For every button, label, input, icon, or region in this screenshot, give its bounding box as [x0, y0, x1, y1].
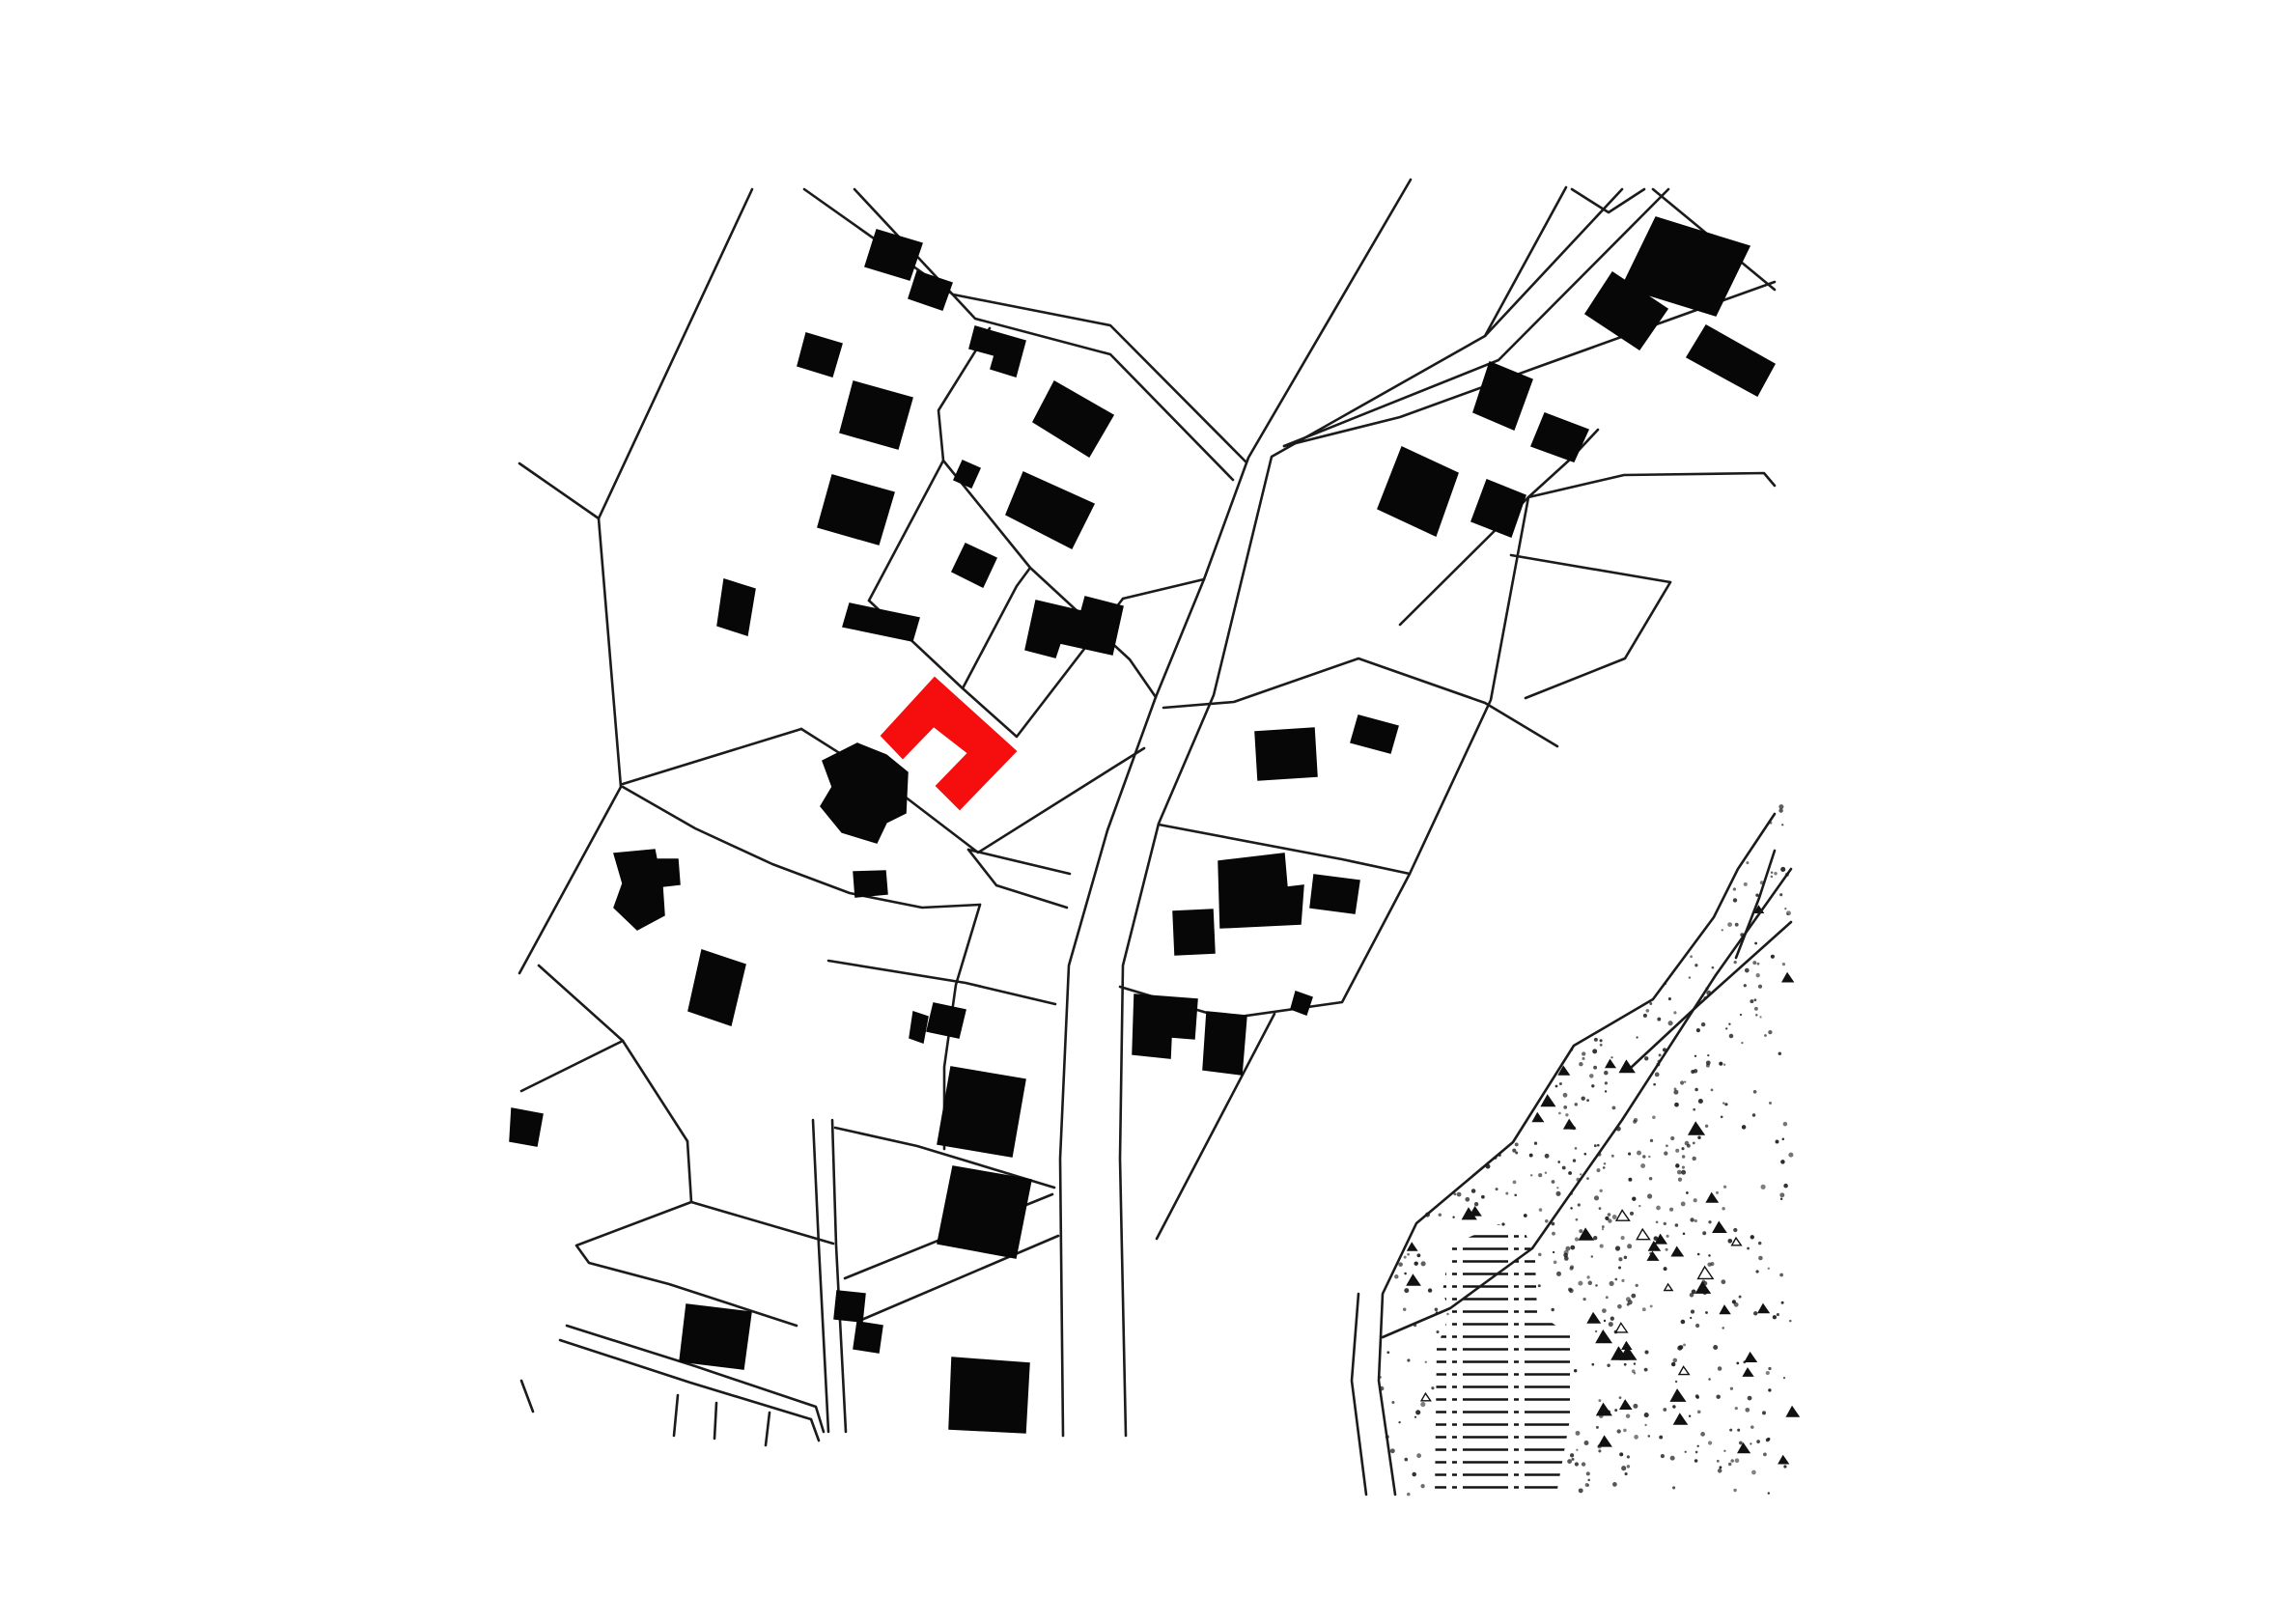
- stipple-dot: [1778, 804, 1783, 809]
- stipple-dot: [1420, 1484, 1424, 1488]
- stipple-dot: [1766, 1438, 1770, 1441]
- stipple-dot: [1656, 1220, 1659, 1223]
- stipple-dot: [1505, 1192, 1508, 1195]
- stipple-dot: [1747, 1247, 1750, 1250]
- stipple-dot: [1769, 1102, 1772, 1105]
- stipple-dot: [1701, 1022, 1705, 1026]
- stipple-dot: [1737, 1429, 1740, 1432]
- stipple-dot: [1404, 1256, 1407, 1259]
- buildings-layer: [510, 217, 1775, 1433]
- stipple-dot: [1706, 1060, 1711, 1065]
- stipple-dot: [1649, 1177, 1652, 1180]
- stipple-dot: [1681, 1320, 1686, 1325]
- stipple-dot: [1394, 1274, 1398, 1278]
- stipple-dot: [1671, 1362, 1675, 1366]
- stipple-dot: [1683, 1343, 1686, 1346]
- stipple-dot: [1624, 1363, 1627, 1366]
- stipple-dot: [1575, 1462, 1579, 1466]
- stipple-dot: [1773, 1315, 1777, 1319]
- parcel-line: [1572, 189, 1644, 212]
- stipple-dot: [1545, 1172, 1547, 1174]
- building-footprint: [938, 1166, 1031, 1258]
- stipple-dot: [1700, 1432, 1705, 1437]
- stipple-dot: [1627, 1455, 1630, 1458]
- stipple-dot: [1552, 1232, 1555, 1236]
- stipple-dot: [1702, 1231, 1706, 1235]
- stipple-dot: [1694, 1198, 1697, 1202]
- stipple-dot: [1657, 1018, 1661, 1021]
- stipple-dot: [1633, 1404, 1638, 1409]
- stipple-dot: [1604, 1162, 1607, 1165]
- stipple-dot: [1754, 1007, 1758, 1011]
- stipple-dot: [1610, 1056, 1612, 1058]
- stipple-dot: [1771, 876, 1774, 879]
- stipple-dot: [1572, 1458, 1575, 1461]
- stipple-triangle-icon: [1596, 1330, 1610, 1342]
- stipple-dot: [1781, 824, 1783, 825]
- stipple-dot: [1750, 1425, 1754, 1429]
- stipple-dot: [1404, 1458, 1408, 1462]
- stipple-dot: [1780, 1160, 1785, 1164]
- stipple-dot: [1693, 1108, 1695, 1111]
- stipple-dot: [1599, 1189, 1602, 1192]
- stipple-dot: [1573, 1159, 1576, 1161]
- building-footprint: [1133, 994, 1197, 1058]
- stipple-dot: [1764, 1034, 1767, 1037]
- building-footprint: [680, 1304, 751, 1369]
- stipple-dot: [1723, 1450, 1725, 1452]
- parcel-line: [766, 1413, 770, 1445]
- stipple-dot: [1695, 1451, 1698, 1454]
- stipple-dot: [1684, 1080, 1686, 1082]
- stipple-dot: [1782, 963, 1785, 965]
- stipple-triangle-icon: [1564, 1120, 1575, 1129]
- parcel-line: [1410, 497, 1528, 874]
- stipple-dot: [1582, 1298, 1585, 1301]
- stipple-dot: [1640, 1163, 1645, 1168]
- parcel-line: [859, 1236, 1058, 1321]
- stipple-dot: [1559, 1082, 1562, 1085]
- stipple-dot: [1481, 1195, 1485, 1199]
- stipple-dot: [1431, 1386, 1434, 1389]
- building-footprint: [1687, 325, 1775, 396]
- stipple-dot: [1496, 1188, 1498, 1190]
- stipple-dot: [1587, 1479, 1590, 1482]
- stipple-dot: [1664, 1222, 1666, 1225]
- building-footprint: [1025, 597, 1123, 658]
- stipple-dot: [1723, 1186, 1726, 1189]
- stipple-dot: [1754, 998, 1757, 1001]
- stipple-dot: [1650, 1304, 1653, 1307]
- stipple-triangle-icon: [1665, 1284, 1672, 1291]
- stipple-dot: [1556, 1187, 1558, 1189]
- stipple-dot: [1514, 1193, 1517, 1196]
- stipple-dot: [1567, 1459, 1572, 1464]
- stipple-dot: [1617, 1304, 1622, 1309]
- stipple-dot: [1756, 1440, 1760, 1443]
- stipple-dot: [1725, 1027, 1727, 1029]
- stipple-dot: [1708, 1254, 1711, 1257]
- stipple-dot: [1414, 1416, 1416, 1418]
- stipple-dot: [1610, 1317, 1614, 1321]
- stipple-dot: [1735, 1407, 1738, 1410]
- stipple-dot: [1598, 1399, 1601, 1402]
- stipple-triangle-icon: [1407, 1275, 1419, 1286]
- stipple-dot: [1407, 1493, 1411, 1497]
- stipple-dot: [1474, 1202, 1478, 1206]
- stipple-dot: [1621, 1279, 1624, 1282]
- stipple-dot: [1576, 1218, 1579, 1221]
- stipple-dot: [1648, 1156, 1650, 1158]
- parcel-line: [1383, 869, 1791, 1337]
- stipple-triangle-icon: [1599, 1437, 1611, 1446]
- stipple-dot: [1740, 1014, 1742, 1016]
- stipple-dot: [1779, 1273, 1783, 1277]
- parcel-line: [1123, 579, 1204, 599]
- stipple-dot: [1780, 1197, 1783, 1200]
- stipple-dot: [1624, 1256, 1627, 1259]
- stipple-dot: [1612, 1215, 1617, 1219]
- stipple-dot: [1668, 997, 1671, 1000]
- stipple-dot: [1722, 1207, 1724, 1210]
- stipple-triangle-icon: [1778, 1456, 1788, 1464]
- stipple-dot: [1586, 1471, 1590, 1475]
- building-footprint: [910, 1012, 928, 1043]
- stipple-dot: [1512, 1149, 1516, 1153]
- stipple-dot: [1597, 1144, 1600, 1147]
- building-footprint: [1255, 728, 1317, 780]
- stipple-dot: [1586, 1177, 1589, 1180]
- stipple-dot: [1768, 1268, 1770, 1270]
- stipple-dot: [1666, 1144, 1668, 1147]
- stipple-dot: [1659, 1436, 1663, 1440]
- stipple-dot: [1694, 1055, 1696, 1057]
- stipple-dot: [1723, 1063, 1725, 1065]
- stipple-dot: [1783, 1377, 1785, 1379]
- stipple-dot: [1690, 955, 1693, 958]
- stipple-dot: [1598, 1449, 1601, 1452]
- stipple-dot: [1728, 1463, 1731, 1466]
- stipple-dot: [1584, 1153, 1587, 1156]
- stipple-dot: [1666, 1248, 1668, 1251]
- stipple-dot: [1741, 1042, 1743, 1044]
- stipple-dot: [1746, 861, 1749, 864]
- stipple-dot: [1420, 1402, 1425, 1407]
- stipple-dot: [1538, 1284, 1541, 1287]
- parcel-line: [623, 1041, 687, 1141]
- stipple-dot: [1768, 1030, 1772, 1034]
- stipple-dot: [1457, 1192, 1462, 1197]
- stipple-dot: [1618, 1257, 1622, 1261]
- stipple-dot: [1653, 1083, 1656, 1086]
- stipple-dot: [1425, 1361, 1427, 1363]
- parcel-line: [623, 787, 980, 908]
- stipple-dot: [1647, 1193, 1652, 1198]
- stipple-dot: [1618, 1267, 1621, 1270]
- stipple-dot: [1608, 1213, 1611, 1217]
- stipple-dot: [1582, 1097, 1585, 1101]
- stipple-triangle-icon: [1721, 1306, 1730, 1314]
- stipple-triangle-icon: [1738, 1443, 1750, 1452]
- stipple-triangle-icon: [1672, 1247, 1683, 1256]
- stipple-dot: [1428, 1288, 1432, 1292]
- stipple-dot: [1664, 1151, 1667, 1155]
- stipple-dot: [1708, 1378, 1711, 1381]
- stipple-dot: [1690, 1293, 1694, 1298]
- stipple-dot: [1649, 1002, 1652, 1005]
- stipple-dot: [1779, 893, 1782, 896]
- stipple-dot: [1659, 1053, 1662, 1056]
- building-footprint: [1351, 715, 1398, 753]
- stipple-dot: [1751, 1470, 1756, 1475]
- stipple-dot: [1754, 942, 1757, 945]
- stipple-dot: [1582, 1051, 1585, 1055]
- stipple-dot: [1555, 1085, 1558, 1088]
- stipple-dot: [1677, 1346, 1682, 1351]
- stipple-dot: [1661, 1454, 1665, 1458]
- stipple-dot: [1670, 1136, 1674, 1140]
- stipple-dot: [1524, 1214, 1527, 1217]
- stipple-dot: [1734, 1302, 1739, 1307]
- parcel-line: [1511, 555, 1670, 582]
- stipple-triangle-icon: [1746, 1353, 1756, 1361]
- stipple-dot: [1564, 1256, 1569, 1261]
- stipple-dot: [1570, 1207, 1573, 1210]
- stipple-dot: [1674, 1103, 1679, 1107]
- stipple-dot: [1436, 1330, 1439, 1333]
- parcel-line: [691, 1202, 833, 1244]
- stipple-dot: [1607, 1364, 1610, 1367]
- stipple-dot: [1690, 1217, 1694, 1221]
- stipple-dot: [1644, 1368, 1648, 1372]
- stipple-dot: [1778, 1051, 1782, 1055]
- building-footprint: [954, 461, 980, 488]
- stipple-dot: [1611, 1105, 1615, 1109]
- stipple-triangle-icon: [1674, 1414, 1687, 1425]
- stipple-dot: [1788, 1153, 1793, 1158]
- stipple-dot: [1570, 1245, 1575, 1250]
- stipple-dot: [1782, 1138, 1785, 1141]
- stipple-dot: [1465, 1197, 1470, 1202]
- stipple-dot: [1600, 1044, 1603, 1047]
- stipple-dot: [1606, 1296, 1609, 1299]
- stipple-dot: [1630, 1212, 1634, 1216]
- stipple-dot: [1695, 1324, 1699, 1328]
- stipple-triangle-icon: [1597, 1404, 1611, 1415]
- stipple-dot: [1570, 1453, 1574, 1457]
- stipple-triangle-icon: [1616, 1323, 1628, 1332]
- stipple-dot: [1678, 1178, 1682, 1182]
- stipple-dot: [1545, 1219, 1549, 1223]
- stipple-dot: [1739, 1441, 1743, 1445]
- stipple-dot: [1675, 1223, 1679, 1227]
- building-footprint: [1291, 992, 1312, 1015]
- stipple-dot: [1755, 1014, 1758, 1017]
- stipple-dot: [1675, 1149, 1679, 1153]
- stipple-dot: [1637, 1151, 1641, 1156]
- stipple-dot: [1602, 1228, 1604, 1230]
- stipple-dot: [1694, 1088, 1698, 1092]
- stipple-dot: [1644, 1350, 1648, 1354]
- stipple-dot: [1602, 1225, 1605, 1228]
- stipple-dot: [1580, 1173, 1582, 1175]
- stipple-dot: [1390, 1448, 1395, 1453]
- stipple-dot: [1776, 1140, 1779, 1144]
- building-footprint: [843, 603, 919, 641]
- building-footprint: [834, 1291, 865, 1322]
- stipple-dot: [1664, 1267, 1667, 1271]
- stipple-dot: [1576, 1449, 1578, 1451]
- stipple-triangle-icon: [1606, 1060, 1615, 1068]
- stipple-dot: [1745, 1408, 1750, 1413]
- stipple-dot: [1612, 1482, 1617, 1487]
- stipple-dot: [1690, 1317, 1692, 1319]
- stipple-dot: [1501, 1222, 1504, 1225]
- stipple-triangle-icon: [1689, 1123, 1704, 1135]
- stipple-dot: [1621, 1236, 1625, 1240]
- stipple-triangle-icon: [1732, 1238, 1742, 1245]
- stipple-dot: [1605, 1081, 1608, 1084]
- stipple-triangle-icon: [1707, 1193, 1718, 1202]
- building-footprint: [510, 1108, 543, 1146]
- stipple-dot: [1538, 1253, 1542, 1257]
- stipple-dot: [1593, 1066, 1597, 1070]
- parcel-line: [674, 1395, 678, 1436]
- stipple-triangle-icon: [1744, 1368, 1753, 1376]
- stipple-dot: [1579, 1062, 1582, 1066]
- stipple-dot: [1672, 1405, 1675, 1408]
- stipple-dot: [1578, 1203, 1581, 1206]
- stipple-dot: [1696, 1396, 1699, 1399]
- stipple-dot: [1668, 1021, 1673, 1025]
- stipple-dot: [1403, 1307, 1406, 1310]
- stipple-dot: [1593, 1236, 1597, 1240]
- building-footprint: [909, 271, 952, 310]
- stipple-dot: [1628, 1178, 1632, 1182]
- stipple-dot: [1682, 1166, 1685, 1169]
- stipple-dot: [1625, 1472, 1628, 1475]
- parcel-line: [854, 189, 1233, 480]
- building-footprint: [688, 950, 745, 1025]
- stipple-dot: [1780, 867, 1785, 872]
- parcel-lines-layer: [519, 180, 1791, 1495]
- stipple-dot: [1404, 1273, 1407, 1275]
- stipple-dot: [1412, 1472, 1416, 1477]
- stipple-dot: [1744, 882, 1748, 886]
- stipple-dot: [1783, 1122, 1788, 1127]
- stipple-dot: [1689, 976, 1691, 978]
- stipple-dot: [1724, 1103, 1727, 1105]
- stipple-dot: [1604, 1320, 1606, 1322]
- parcel-line: [521, 1381, 533, 1412]
- parcel-line: [519, 787, 621, 973]
- stipple-dot: [1674, 1087, 1677, 1090]
- building-footprint: [1218, 853, 1303, 928]
- stipple-dot: [1650, 1139, 1653, 1142]
- stipple-dot: [1407, 1253, 1410, 1256]
- stipple-triangle-icon: [1679, 1366, 1689, 1374]
- stipple-dot: [1579, 1488, 1583, 1493]
- stipple-dot: [1771, 872, 1773, 874]
- parcel-line: [599, 189, 752, 518]
- stipple-triangle-icon: [1542, 1096, 1555, 1106]
- building-footprint: [717, 579, 755, 635]
- stipple-dot: [1686, 1191, 1689, 1194]
- stipple-triangle-icon: [1421, 1393, 1431, 1401]
- stipple-dot: [1603, 1166, 1606, 1169]
- building-footprint: [865, 230, 922, 280]
- stipple-dot: [1786, 913, 1788, 915]
- stipple-dot: [1716, 1394, 1721, 1399]
- stipple-dot: [1753, 1090, 1757, 1094]
- stipple-dot: [1696, 1445, 1698, 1447]
- stipple-dot: [1736, 1361, 1739, 1364]
- stipple-dot: [1683, 1233, 1686, 1236]
- stipple-dot: [1623, 1429, 1627, 1433]
- stipple-dot: [1758, 1242, 1762, 1245]
- stipple-dot: [1750, 1235, 1754, 1239]
- stipple-dot: [1604, 1071, 1609, 1076]
- stipple-triangle-icon: [1408, 1244, 1416, 1250]
- stipple-dot: [1575, 1147, 1578, 1150]
- building-footprint: [1173, 909, 1215, 955]
- stipple-dot: [1632, 1197, 1636, 1201]
- stipple-dot: [1705, 1125, 1708, 1128]
- stipple-dot: [1627, 1465, 1630, 1468]
- stipple-dot: [1439, 1213, 1442, 1217]
- parcel-line: [1528, 473, 1775, 497]
- stipple-dot: [1756, 973, 1760, 977]
- stipple-dot: [1733, 887, 1736, 890]
- building-footprint: [969, 326, 1025, 377]
- stipple-dot: [1608, 1218, 1611, 1222]
- stipple-dot: [1638, 1205, 1640, 1207]
- stipple-dot: [1710, 1262, 1714, 1266]
- stipple-dot: [1762, 1411, 1766, 1414]
- stipple-dot: [1734, 961, 1737, 964]
- building-footprint: [798, 333, 842, 377]
- stipple-dot: [1750, 1442, 1751, 1444]
- stipple-dot: [1588, 1281, 1593, 1286]
- building-footprint: [1033, 381, 1113, 457]
- stipple-dot: [1783, 1465, 1786, 1468]
- stipple-dot: [1705, 1311, 1708, 1314]
- parcel-line: [539, 965, 623, 1041]
- parcel-line: [521, 1041, 623, 1091]
- stipple-dot: [1596, 1426, 1599, 1429]
- stipple-dot: [1711, 1089, 1714, 1092]
- stipple-dot: [1648, 1435, 1651, 1438]
- stipple-dot: [1563, 1105, 1567, 1109]
- stipple-triangle-icon: [1671, 1390, 1686, 1402]
- building-footprint: [1006, 472, 1094, 548]
- stipple-dot: [1722, 1102, 1724, 1104]
- stipple-dot: [1748, 1396, 1752, 1401]
- stipple-dot: [1652, 1116, 1656, 1120]
- stipple-dot: [1644, 1413, 1649, 1417]
- stipple-dot: [1694, 964, 1697, 966]
- stipple-dot: [1693, 1142, 1695, 1145]
- parcel-line: [623, 729, 801, 784]
- stipple-dot: [1750, 999, 1753, 1003]
- stipple-dot: [1673, 1358, 1678, 1363]
- stipple-dot: [1515, 1142, 1519, 1146]
- stipple-dot: [1681, 1201, 1686, 1206]
- stipple-dot: [1591, 1255, 1593, 1257]
- stipple-dot: [1592, 1049, 1597, 1053]
- stipple-dot: [1513, 1180, 1517, 1184]
- stipple-dot: [1716, 1191, 1719, 1194]
